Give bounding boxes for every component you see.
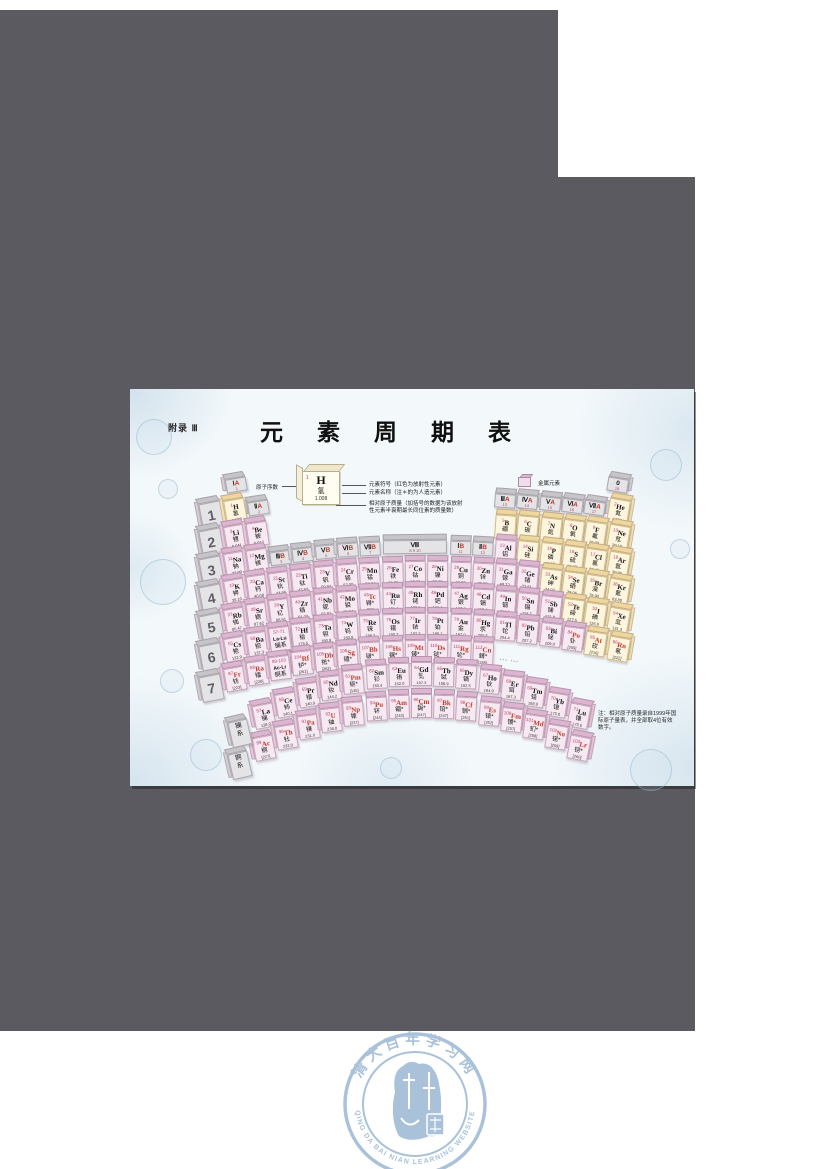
cube-front-face: 102No锘*[259]	[544, 723, 569, 750]
element-mass: 209.0	[544, 640, 555, 646]
cube-front-face: ⅢA13	[494, 493, 516, 508]
element-mass: 204.4	[500, 635, 510, 641]
group-header: ⅤA15	[539, 496, 561, 512]
series-label-cube: 镧系	[227, 718, 252, 748]
element-mass: 173.0	[550, 710, 561, 717]
series-name: 锕系	[275, 671, 288, 679]
element-mass: [243]	[395, 713, 404, 718]
element-cube: 63Eu铕152.0	[388, 663, 410, 688]
cube-front-face: 99Es锿*[252]	[478, 701, 501, 727]
group-header: Ⅷ8 9 10	[383, 540, 447, 555]
cube-front-face: 018	[606, 476, 629, 493]
element-cube: 102No锘*[259]	[544, 723, 569, 750]
element-number-symbol: 99Es	[483, 703, 496, 714]
element-number-symbol: 31Ga	[498, 566, 513, 577]
element-number-symbol: 30Zn	[476, 564, 490, 575]
element-cube: 81Tl铊204.4	[494, 616, 517, 641]
element-name: 铁	[390, 574, 396, 580]
element-number-symbol: 21Sc	[273, 573, 286, 584]
cube-front-face: 68Er铒167.3	[500, 675, 524, 701]
cube-front-face: 63Eu铕152.0	[388, 663, 410, 688]
element-cube: 82Pb铅207.2	[516, 619, 539, 645]
element-cube: 97Bk锫*[247]	[433, 695, 455, 720]
cube-front-face: 97Bk锫*[247]	[433, 695, 455, 720]
group-header: ⅢA13	[494, 493, 516, 508]
element-number-symbol: 47Ag	[454, 589, 468, 599]
element-number-symbol: 51Sb	[544, 597, 558, 608]
element-mass: [209]	[567, 644, 576, 650]
element-number-symbol: 106Sg	[340, 646, 356, 657]
element-mass: [222]	[612, 654, 622, 660]
cube-front-face: 69Tm铥168.9	[522, 682, 546, 709]
group-number: 16	[569, 508, 574, 513]
element-mass: 231.0	[305, 733, 316, 739]
element-mass: 238.0	[327, 725, 338, 731]
element-cube: 85At砹[210]	[583, 630, 607, 657]
element-number-symbol: 63Eu	[392, 665, 406, 675]
footnote: 注：相对原子质量录自1999年国际原子量表，并全部取4位有效数字。	[598, 711, 678, 732]
group-header: ⅡA2	[247, 500, 270, 517]
element-mass: 164.9	[483, 687, 493, 693]
series-label-text: 锕系	[234, 753, 244, 770]
viewer-white-area	[558, 0, 827, 177]
element-cube: 68Er铒167.3	[500, 675, 524, 701]
element-mass: 150.4	[372, 683, 382, 689]
group-number: 15	[547, 506, 552, 510]
element-number-symbol: 65Tb	[437, 665, 451, 675]
element-number-symbol: 109Mt	[407, 642, 424, 652]
group-header: ⅠA1	[224, 476, 247, 493]
element-cube: 95Am镅*[243]	[388, 695, 410, 720]
element-cube: 100Fm镄*[257]	[500, 707, 524, 733]
element-mass: [247]	[439, 713, 448, 718]
element-name: 铜	[457, 574, 463, 580]
element-cube: 61Pm钷*[145]	[342, 669, 365, 695]
group-header: ⅠB11	[450, 540, 471, 555]
element-mass: [145]	[350, 687, 359, 693]
element-number-symbol: 100Fm	[503, 709, 522, 721]
group-header: ⅦB7	[360, 541, 382, 556]
period-number: 4	[205, 586, 217, 609]
series-placeholder-cube: 57-71La-Lu镧系	[268, 626, 292, 653]
cube-front-face: ⅠB11	[450, 540, 471, 555]
element-number-symbol: 80Hg	[476, 617, 490, 628]
element-cube: 99Es锿*[252]	[478, 701, 501, 727]
element-number-symbol: 83Bi	[545, 624, 558, 635]
element-mass: [227]	[260, 753, 270, 760]
cube-front-face: ⅡB12	[472, 541, 494, 556]
element-mass: [244]	[372, 715, 381, 720]
element-number-symbol: 49In	[500, 592, 512, 603]
element-mass: [261]	[299, 669, 308, 675]
element-number-symbol: 96Cm	[413, 696, 429, 706]
cube-front-face: 98Cf锎*[251]	[455, 697, 477, 722]
element-number-symbol: 110Ds	[430, 642, 445, 652]
group-header: ⅥB6	[337, 542, 359, 557]
element-number-symbol: 34Se	[567, 573, 580, 584]
period-number: 7	[205, 676, 217, 699]
element-mass: 158.9	[439, 681, 449, 686]
element-cube: 103Lr铹*[260]	[566, 734, 591, 762]
cube-front-face: 85At砹[210]	[583, 630, 607, 657]
element-number-symbol: 45Rh	[408, 589, 422, 599]
element-mass: [237]	[350, 719, 359, 725]
element-mass: 232.0	[282, 742, 293, 749]
element-mass: 144.2	[327, 693, 338, 699]
group-number: 8 9 10	[410, 549, 421, 553]
element-name: 铟	[502, 602, 508, 608]
element-mass: [210]	[590, 649, 600, 655]
cube-front-face: ⅠA1	[224, 476, 247, 493]
group-number: 4	[302, 556, 305, 560]
element-cube: 94Pu钚[244]	[365, 697, 387, 722]
element-cube: 83Bi铋209.0	[539, 622, 563, 648]
element-number-symbol: 77Ir	[410, 615, 421, 625]
element-mass: 152.0	[394, 681, 404, 686]
element-number-symbol: 27Co	[408, 563, 422, 573]
element-number-symbol: 46Pd	[431, 589, 444, 599]
cube-front-face: 65Tb铽158.9	[433, 663, 455, 688]
element-mass: [257]	[506, 725, 515, 731]
element-mass: [258]	[528, 733, 538, 739]
element-number-symbol: 64Gd	[414, 664, 428, 674]
group-number: 18	[614, 487, 619, 492]
cube-front-face: ⅤA15	[539, 496, 561, 512]
series-range: 57-71	[273, 628, 285, 634]
element-cube: 84Po钋[209]	[561, 626, 585, 653]
cube-front-face: 66Dy镝162.5	[455, 665, 477, 690]
cube-front-face: 81Tl铊204.4	[494, 616, 517, 641]
element-mass: 207.2	[522, 637, 532, 643]
element-number-symbol: 40Zr	[295, 597, 309, 608]
element-number-symbol: 97Bk	[437, 697, 451, 707]
element-mass: [226]	[254, 678, 264, 684]
cube-front-face: 84Po钋[209]	[561, 626, 585, 653]
watermark-logo: 清大百年学习网 QING DA BAI NIAN LEARNING WEBSIT…	[333, 1028, 497, 1169]
element-cube: 69Tm铥168.9	[522, 682, 546, 709]
element-number-symbol: 43Tc	[364, 591, 377, 602]
cube-front-face: ⅦA17	[583, 500, 606, 517]
element-name: 锌	[480, 574, 486, 580]
group-number: 1	[235, 487, 238, 491]
element-cube: 96Cm锔*[247]	[411, 694, 432, 718]
element-number-symbol: 67Ho	[482, 671, 497, 682]
element-mass: [247]	[417, 712, 426, 717]
element-number-symbol: 22Ti	[296, 570, 309, 581]
element-number-symbol: 5B	[502, 517, 510, 527]
element-cube: 101Md钔*[258]	[522, 714, 546, 741]
element-number-symbol: 93Np	[346, 703, 361, 714]
element-number-symbol: 95Am	[391, 697, 407, 707]
series-range: 89-103	[272, 657, 287, 664]
element-cube: 65Tb铽158.9	[433, 663, 455, 688]
element-name: 锇	[390, 626, 396, 632]
element-number-symbol: 32Ge	[521, 567, 535, 578]
group-number: 3	[280, 559, 283, 563]
element-number-symbol: 44Ru	[385, 589, 399, 599]
element-number-symbol: 41Nb	[317, 594, 332, 605]
element-number-symbol: 75Re	[363, 617, 377, 628]
element-mass: 167.3	[505, 693, 516, 699]
element-name: 金	[457, 626, 463, 632]
element-number-symbol: 82Pb	[521, 621, 535, 632]
period-number: 6	[205, 646, 217, 669]
element-mass: 157.3	[416, 680, 426, 685]
element-number-symbol: 73Ta	[318, 621, 331, 632]
group-number: 11	[458, 550, 462, 554]
element-number-symbol: 79Au	[453, 615, 467, 625]
cube-front-face: ⅦB7	[360, 541, 382, 556]
group-number: 5	[325, 554, 328, 558]
group-number: 14	[525, 504, 530, 508]
element-cube: 93Np镎[237]	[342, 701, 365, 727]
element-cube: 66Dy镝162.5	[455, 665, 477, 690]
group-number: 17	[592, 510, 597, 515]
element-cube: 67Ho钬164.9	[478, 669, 501, 695]
element-number-symbol: 29Cu	[453, 563, 467, 573]
cube-front-face: 89-103Ac-Lr锕系	[268, 655, 292, 682]
cube-front-face: 94Pu钚[244]	[365, 697, 387, 722]
element-number-symbol: 25Mn	[362, 564, 378, 575]
element-mass: [252]	[484, 719, 493, 725]
cube-front-face: ⅣA14	[516, 494, 538, 510]
element-number-symbol: 12Mg	[249, 550, 265, 562]
cube-front-face: 57-71La-Lu镧系	[268, 626, 292, 653]
element-mass: [223]	[232, 684, 242, 690]
series-symbols: La-Lu	[273, 635, 287, 643]
group-header: 018	[606, 476, 629, 493]
cube-front-face: 96Cm锔*[247]	[411, 694, 432, 718]
scanned-book-page: 附录 Ⅲ 元 素 周 期 表 原子序数 1 H 氢 1.008 元素符号（红色为…	[130, 389, 694, 786]
element-number-symbol: 13Al	[499, 541, 512, 552]
cube-front-face: 100Fm镄*[257]	[500, 707, 524, 733]
cube-front-face: ⅡA2	[247, 500, 270, 517]
series-placeholder-cube: 89-103Ac-Lr锕系	[268, 655, 292, 682]
element-mass: 140.9	[305, 701, 316, 707]
cube-front-face: 95Am镅*[243]	[388, 695, 410, 720]
element-number-symbol: 24Cr	[340, 566, 354, 577]
series-label-cube: 锕系	[227, 750, 252, 780]
element-number-symbol: 33As	[544, 570, 558, 581]
element-cube: 98Cf锎*[251]	[455, 697, 477, 722]
element-number-symbol: 74W	[341, 619, 354, 630]
element-number-symbol: 28Ni	[432, 563, 444, 573]
element-cube: 62Sm钐150.4	[365, 665, 387, 690]
element-mass: 162.5	[461, 683, 471, 689]
cube-front-face: 64Gd钆157.3	[411, 662, 432, 686]
group-number: 7	[369, 551, 371, 555]
cube-front-face: 86Rn氡[222]	[606, 636, 631, 663]
element-mass: [259]	[550, 742, 560, 748]
group-header: ⅥA16	[561, 498, 584, 515]
element-cube: 86Rn氡[222]	[606, 636, 631, 663]
group-header: ⅡB12	[472, 541, 494, 556]
element-mass: [251]	[461, 715, 470, 720]
cube-front-face: 62Sm钐150.4	[365, 665, 387, 690]
element-mass: 175.0	[572, 721, 583, 728]
cube-front-face: 61Pm钷*[145]	[342, 669, 365, 695]
cube-front-face: 67Ho钬164.9	[478, 669, 501, 695]
cube-front-face: 82Pb铅207.2	[516, 619, 539, 645]
element-number-symbol: 108Hs	[385, 643, 401, 653]
group-number: 2	[257, 510, 260, 514]
cube-front-face: Ⅷ8 9 10	[383, 540, 447, 555]
element-number-symbol: 42Mo	[339, 592, 355, 603]
group-number: 6	[347, 552, 350, 556]
cube-front-face: 93Np镎[237]	[342, 701, 365, 727]
screenshot-canvas: 附录 Ⅲ 元 素 周 期 表 原子序数 1 H 氢 1.008 元素符号（红色为…	[0, 0, 827, 1169]
cube-front-face: ⅥB6	[337, 542, 359, 557]
cube-front-face: ⅥA16	[561, 498, 584, 515]
cube-front-face: 101Md钔*[258]	[522, 714, 546, 741]
period-number: 5	[205, 616, 217, 639]
series-label-text: 镧系	[234, 721, 244, 738]
element-number-symbol: 105Db	[316, 649, 333, 660]
element-number-symbol: 60Nd	[323, 677, 338, 688]
element-number-symbol: 48Cd	[476, 590, 490, 601]
group-header: ⅦA17	[583, 500, 606, 517]
element-cube: 64Gd钆157.3	[411, 662, 432, 686]
element-name: 银	[457, 600, 463, 606]
cube-front-face: 83Bi铋209.0	[539, 622, 563, 648]
element-number-symbol: 68Er	[505, 677, 519, 688]
group-number: 12	[480, 550, 485, 554]
element-number-symbol: 76Os	[386, 616, 399, 626]
element-name: 锰	[367, 574, 373, 580]
element-number-symbol: 78Pt	[432, 615, 444, 625]
element-number-symbol: 61Pm	[345, 671, 361, 682]
element-mass: 168.9	[528, 701, 539, 707]
group-header: ⅣA14	[516, 494, 538, 510]
group-number: 13	[502, 503, 507, 507]
element-mass: [260]	[573, 753, 583, 760]
element-name: 铝	[502, 551, 508, 557]
element-number-symbol: 56Ba	[249, 633, 264, 645]
element-number-symbol: 111Rg	[453, 643, 469, 653]
element-name: 钌	[390, 600, 396, 606]
element-number-symbol: 26Fe	[386, 563, 399, 573]
series-symbols: Ac-Lr	[273, 664, 287, 672]
